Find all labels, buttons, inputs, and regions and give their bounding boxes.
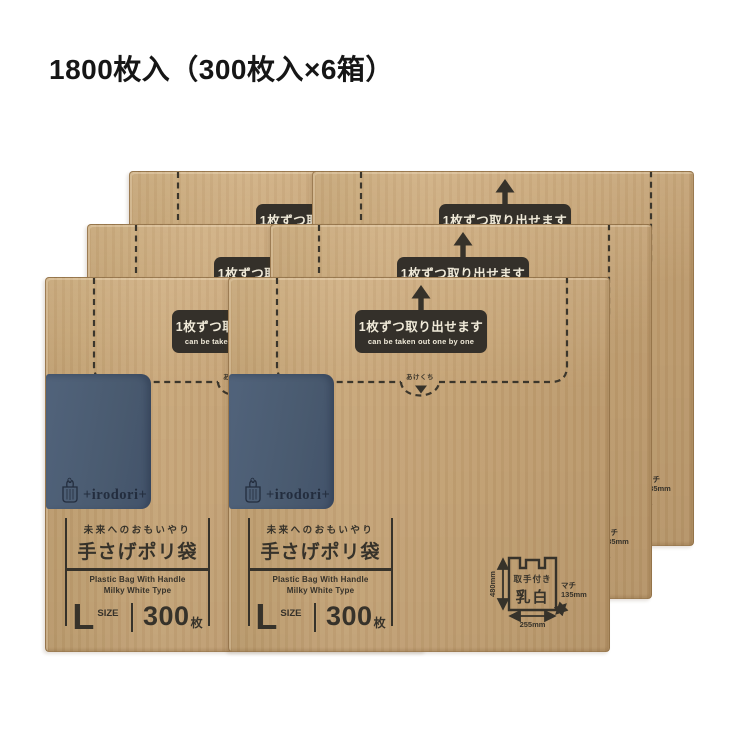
sheet-count-unit: 枚 <box>374 614 386 631</box>
size-count-row: L SIZE 300 枚 <box>250 603 391 632</box>
bag-doodle-icon <box>241 474 265 504</box>
sheet-count: 300 <box>143 606 190 628</box>
label-divider-rule <box>67 568 208 571</box>
takeout-badge-en: can be taken out one by one <box>355 337 487 346</box>
takeout-arrow-icon <box>412 285 431 311</box>
product-name: 手さげポリ袋 <box>67 537 208 564</box>
quantity-title: 1800枚入（300枚入×6箱） <box>49 48 394 88</box>
size-count-row: L SIZE 300 枚 <box>67 603 208 632</box>
size-word: SIZE <box>280 608 301 619</box>
takeout-badge-jp: 1枚ずつ取り出せます <box>355 316 487 335</box>
product-subtitle-en2: Milky White Type <box>250 586 391 597</box>
bag-doodle-icon <box>58 474 82 504</box>
handle-type-label: 取手付き <box>513 574 551 584</box>
product-label: 未来へのおもいやり 手さげポリ袋 Plastic Bag With Handle… <box>248 518 393 626</box>
label-divider-rule <box>250 568 391 571</box>
brand-logo: +irodori+ <box>241 474 330 504</box>
takeout-arrow-icon <box>496 179 515 205</box>
carton-face: あけくち 1枚ずつ取り出せます can be taken out one by … <box>228 277 610 652</box>
size-letter: L <box>255 603 277 631</box>
opening-label: あけくち <box>406 372 434 381</box>
brand-logo: +irodori+ <box>58 474 147 504</box>
sheet-count-unit: 枚 <box>191 614 203 631</box>
product-label: 未来へのおもいやり 手さげポリ袋 Plastic Bag With Handle… <box>65 518 210 626</box>
product-name: 手さげポリ袋 <box>250 537 391 564</box>
size-count-divider <box>131 603 134 632</box>
tagline: 未来へのおもいやり <box>250 522 391 536</box>
product-subtitle-en1: Plastic Bag With Handle <box>67 575 208 586</box>
color-type-label: 乳白 <box>515 588 549 606</box>
product-subtitle-en1: Plastic Bag With Handle <box>250 575 391 586</box>
brand-name: +irodori+ <box>266 488 330 505</box>
width-value: 255mm <box>520 620 546 629</box>
size-count-divider <box>314 603 317 632</box>
spec-diagram: 取手付き 乳白 480mm 255mm マチ 135mm <box>479 546 597 630</box>
product-photo: 1800枚入（300枚入×6箱） あけくち 1枚ずつ取り出せます can be … <box>0 0 740 740</box>
box-front-right: あけくち 1枚ずつ取り出せます can be taken out one by … <box>228 277 610 652</box>
height-value: 480mm <box>488 571 497 597</box>
tagline: 未来へのおもいやり <box>67 522 208 536</box>
gusset-value: 135mm <box>561 590 587 599</box>
blue-label-patch: +irodori+ <box>229 374 334 509</box>
takeout-badge: 1枚ずつ取り出せます can be taken out one by one <box>355 310 487 353</box>
size-letter: L <box>72 603 94 631</box>
gusset-arrow <box>557 605 565 613</box>
takeout-arrow-icon <box>454 232 473 258</box>
brand-name: +irodori+ <box>83 488 147 505</box>
blue-label-patch: +irodori+ <box>46 374 151 509</box>
notch-arrow-icon <box>415 386 427 394</box>
product-subtitle-en2: Milky White Type <box>67 586 208 597</box>
sheet-count: 300 <box>326 606 373 628</box>
gusset-label: マチ <box>561 581 576 590</box>
size-word: SIZE <box>97 608 118 619</box>
